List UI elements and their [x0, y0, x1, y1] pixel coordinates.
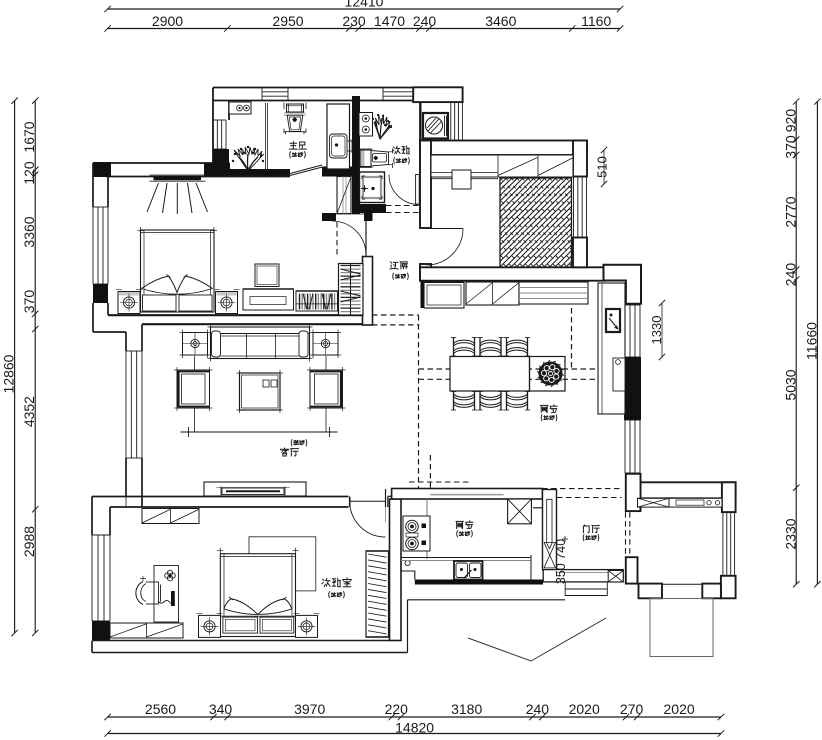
svg-text:220: 220 [385, 701, 409, 717]
svg-text:2560: 2560 [145, 701, 176, 717]
svg-text:240: 240 [783, 263, 799, 287]
svg-text:230: 230 [342, 13, 366, 29]
svg-text:270: 270 [620, 701, 644, 717]
svg-text:14820: 14820 [395, 720, 434, 736]
svg-text:2988: 2988 [21, 526, 37, 557]
svg-text:1330: 1330 [649, 316, 664, 345]
svg-text:12860: 12860 [1, 354, 17, 393]
svg-text:370: 370 [21, 290, 37, 314]
svg-text:120: 120 [21, 161, 37, 185]
svg-text:4352: 4352 [21, 396, 37, 427]
svg-text:12410: 12410 [345, 0, 384, 10]
svg-text:3460: 3460 [485, 13, 516, 29]
svg-text:2020: 2020 [664, 701, 695, 717]
svg-text:2330: 2330 [783, 518, 799, 549]
svg-text:3180: 3180 [451, 701, 482, 717]
svg-text:2020: 2020 [569, 701, 600, 717]
svg-text:2950: 2950 [272, 13, 303, 29]
svg-text:240: 240 [413, 13, 437, 29]
svg-text:5030: 5030 [783, 369, 799, 400]
svg-text:340: 340 [209, 701, 233, 717]
svg-text:370: 370 [783, 135, 799, 159]
svg-text:3970: 3970 [294, 701, 325, 717]
svg-text:11660: 11660 [804, 322, 820, 360]
svg-text:1160: 1160 [581, 13, 611, 29]
svg-text:510: 510 [595, 156, 610, 178]
svg-text:240: 240 [526, 701, 550, 717]
svg-text:2770: 2770 [783, 196, 799, 227]
svg-text:350 740: 350 740 [554, 539, 568, 584]
svg-text:3360: 3360 [21, 216, 37, 247]
svg-text:1670: 1670 [21, 121, 37, 152]
svg-text:1470: 1470 [374, 13, 405, 29]
svg-text:920: 920 [783, 109, 799, 133]
svg-text:2900: 2900 [152, 13, 183, 29]
